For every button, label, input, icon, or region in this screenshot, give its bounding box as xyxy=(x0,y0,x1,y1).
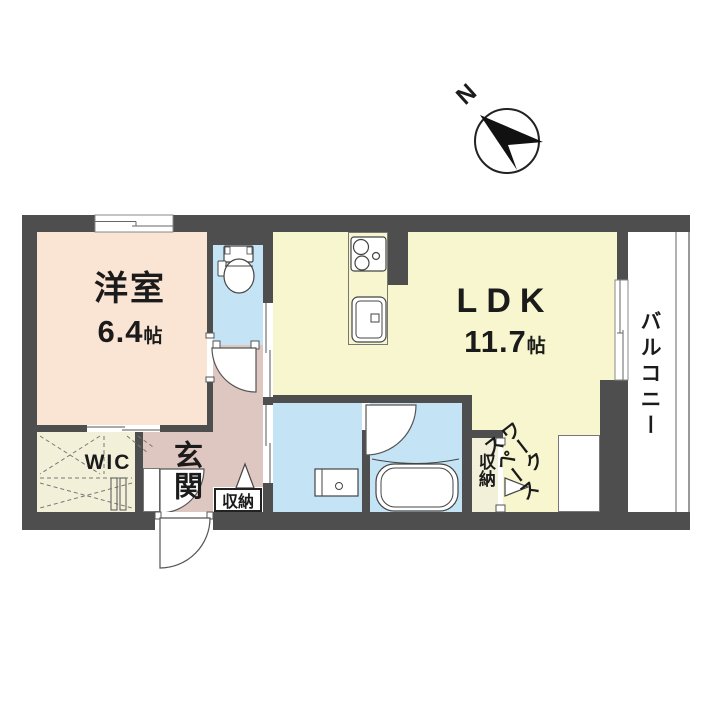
wic-pipe-icon xyxy=(111,478,126,510)
western-room-label: 洋室 xyxy=(55,272,205,308)
bathtub-icon xyxy=(372,459,459,511)
toilet-icon xyxy=(218,246,254,293)
window-icon xyxy=(95,215,173,232)
ldk-size-value: 11.7 xyxy=(464,324,527,359)
balcony-label: バルコニー xyxy=(638,310,660,440)
stove-icon xyxy=(351,237,386,271)
ldk-size: 11.7帖 xyxy=(415,326,595,359)
door-arc xyxy=(366,405,416,455)
hall-storage-box: 収納 xyxy=(214,488,262,512)
washbasin-icon xyxy=(315,469,358,496)
wic-label: WIC xyxy=(78,452,138,474)
western-room-size-unit: 帖 xyxy=(144,326,163,347)
hall-storage-label: 収納 xyxy=(222,488,254,512)
sliding-door-icon xyxy=(87,425,160,432)
sliding-door-icon xyxy=(263,405,273,483)
ldk-label: LDK xyxy=(415,284,595,320)
sliding-door-icon xyxy=(263,303,273,397)
entrance-door-arc xyxy=(155,512,213,568)
western-room-size-value: 6.4 xyxy=(97,314,143,349)
folding-door-icon xyxy=(236,464,254,488)
floor-plan-page: { "compass": { "label": "N" }, "rooms": … xyxy=(0,0,720,720)
door-arc xyxy=(212,341,259,392)
western-room-size: 6.4帖 xyxy=(55,316,205,349)
ldk-size-unit: 帖 xyxy=(527,336,546,357)
entrance-label: 玄関 xyxy=(170,440,200,502)
balcony-window-icon xyxy=(615,280,628,380)
kitchen-sink-icon xyxy=(352,297,386,342)
plan-symbols xyxy=(0,0,720,720)
compass-icon xyxy=(475,109,543,173)
